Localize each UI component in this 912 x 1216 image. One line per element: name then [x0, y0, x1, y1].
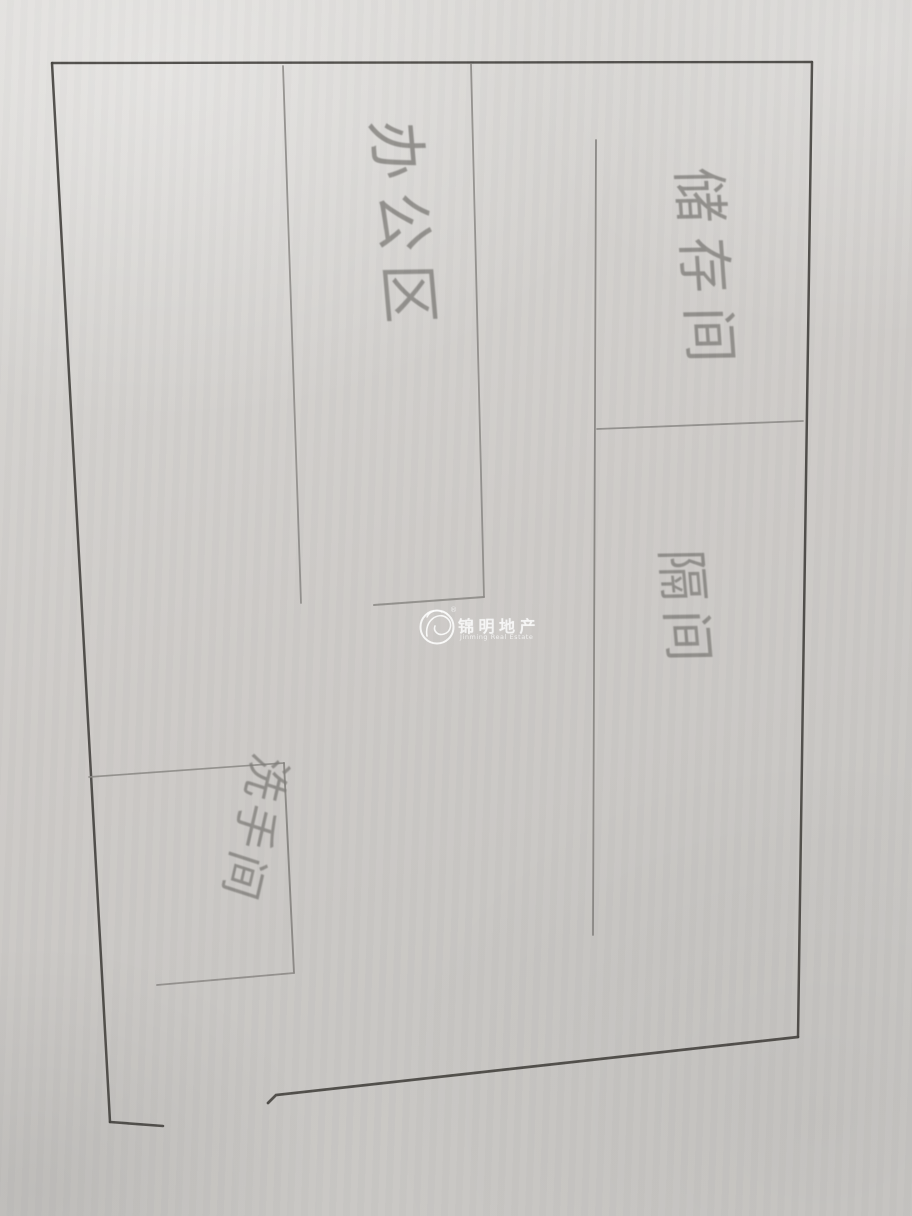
office-wall-left [283, 66, 301, 603]
paper-photo-background: 办公区 储存间 隔间 洗手间 ® 锦明地产 Jinming Real Estat… [0, 0, 912, 1216]
partition-wall-vertical [593, 140, 596, 935]
washroom-wall-bottom [157, 973, 294, 985]
storage-wall-bottom [597, 421, 803, 429]
room-label-office-area: 办公区 [363, 120, 442, 336]
outer-wall-top [52, 62, 812, 63]
watermark-logo [421, 611, 454, 644]
floor-plan-sketch [0, 0, 912, 1216]
outer-wall-bottom [268, 1037, 798, 1103]
outer-wall-left [52, 63, 110, 1122]
outer-wall-right [798, 62, 812, 1037]
room-label-partition-room: 隔间 [653, 549, 716, 671]
office-wall-bottom [374, 597, 484, 605]
office-wall-right [471, 64, 484, 597]
outer-wall-left-foot [110, 1122, 163, 1126]
watermark-logo-elephant-icon [427, 616, 451, 636]
room-label-storage-room: 储存间 [668, 167, 739, 377]
